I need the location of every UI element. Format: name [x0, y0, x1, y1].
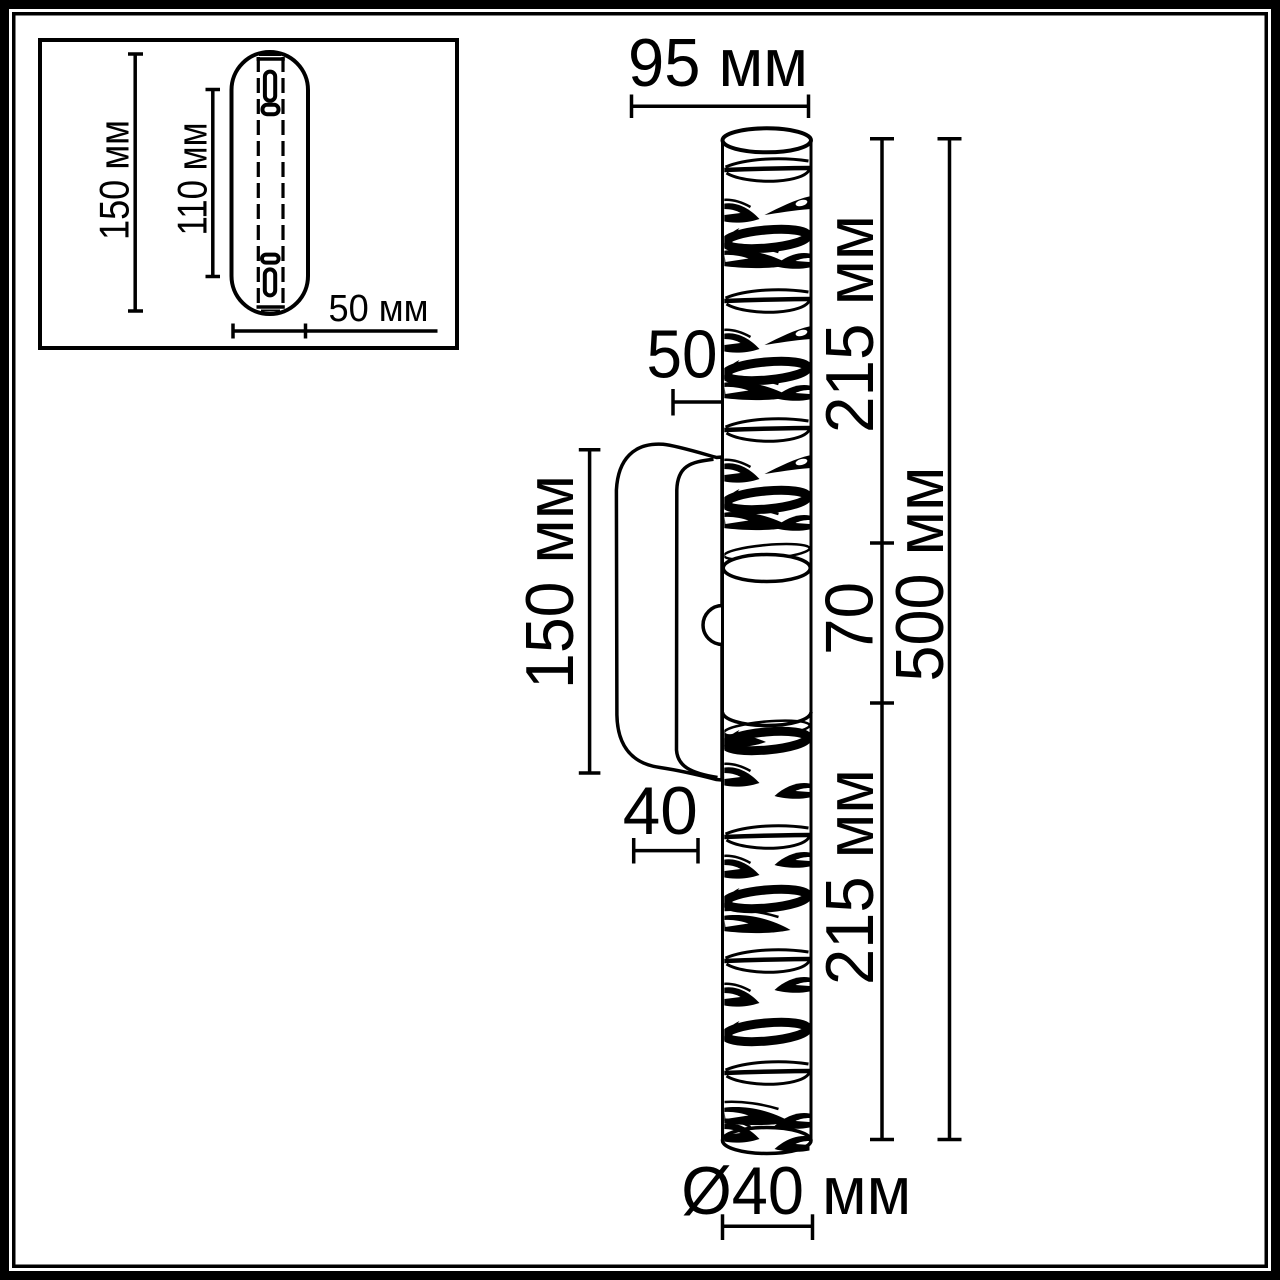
- svg-text:70: 70: [812, 582, 888, 655]
- svg-text:40: 40: [623, 773, 698, 849]
- svg-text:50 мм: 50 мм: [329, 288, 429, 330]
- svg-text:150 мм: 150 мм: [512, 475, 588, 689]
- svg-text:110 мм: 110 мм: [169, 123, 216, 236]
- svg-text:150 мм: 150 мм: [91, 120, 138, 240]
- svg-text:500 мм: 500 мм: [882, 467, 958, 682]
- svg-text:215 мм: 215 мм: [812, 769, 888, 985]
- svg-text:Ø40 мм: Ø40 мм: [681, 1153, 911, 1229]
- svg-text:215 мм: 215 мм: [812, 215, 888, 433]
- svg-text:95 мм: 95 мм: [628, 25, 808, 101]
- svg-text:50: 50: [647, 316, 718, 392]
